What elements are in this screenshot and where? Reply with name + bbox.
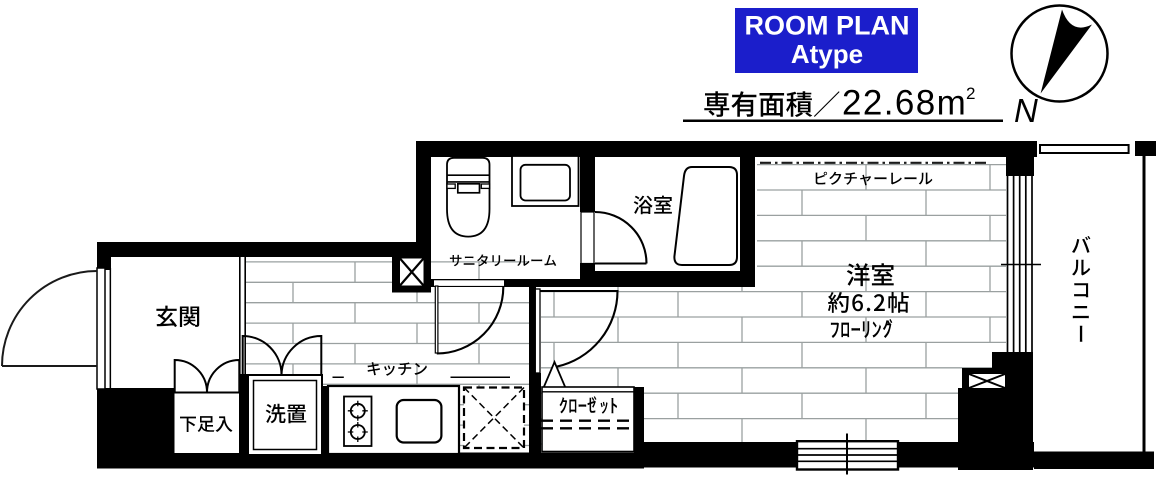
svg-text:ROOM PLAN: ROOM PLAN [745,11,910,41]
svg-text:Atype: Atype [791,39,863,69]
svg-text:22.68m: 22.68m [842,84,967,123]
svg-text:N: N [1014,92,1038,129]
svg-text:2: 2 [966,84,975,103]
